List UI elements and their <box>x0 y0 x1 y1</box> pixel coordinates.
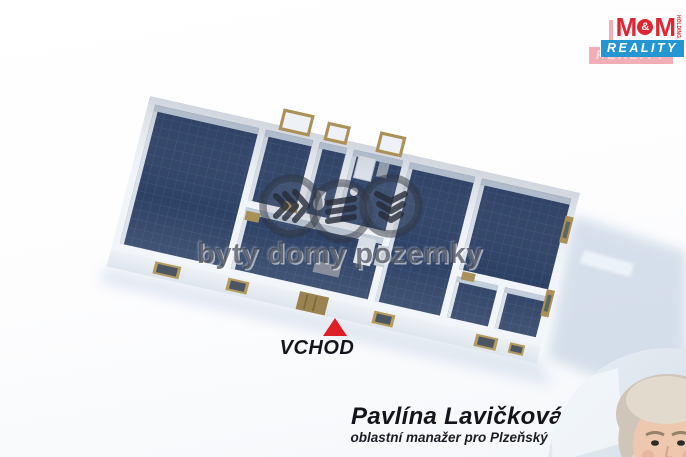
watermark-text: byty domy pozemky <box>197 238 483 271</box>
entrance-marker-triangle <box>323 318 347 336</box>
real-estate-listing-image: byty domy pozemky VCHOD M & M REALITY M … <box>0 0 686 457</box>
logo-mm-box: M & M HOLDING <box>613 13 684 41</box>
rear-window <box>325 123 349 143</box>
logo-ampersand: & <box>636 18 654 36</box>
mm-reality-logo: M & M REALITY M & M HOLDING REALITY <box>584 13 684 65</box>
logo-reality-text: REALITY <box>600 40 684 57</box>
logo-letter: M <box>616 14 636 40</box>
eye <box>677 440 685 446</box>
entrance-label: VCHOD <box>279 337 355 360</box>
logo-main-layer: M & M HOLDING REALITY <box>600 13 684 57</box>
logo-holding-text: HOLDING <box>675 15 681 38</box>
eye <box>651 440 659 446</box>
rear-window <box>377 133 404 156</box>
rear-window <box>280 110 313 135</box>
logo-letter: M <box>654 14 674 40</box>
